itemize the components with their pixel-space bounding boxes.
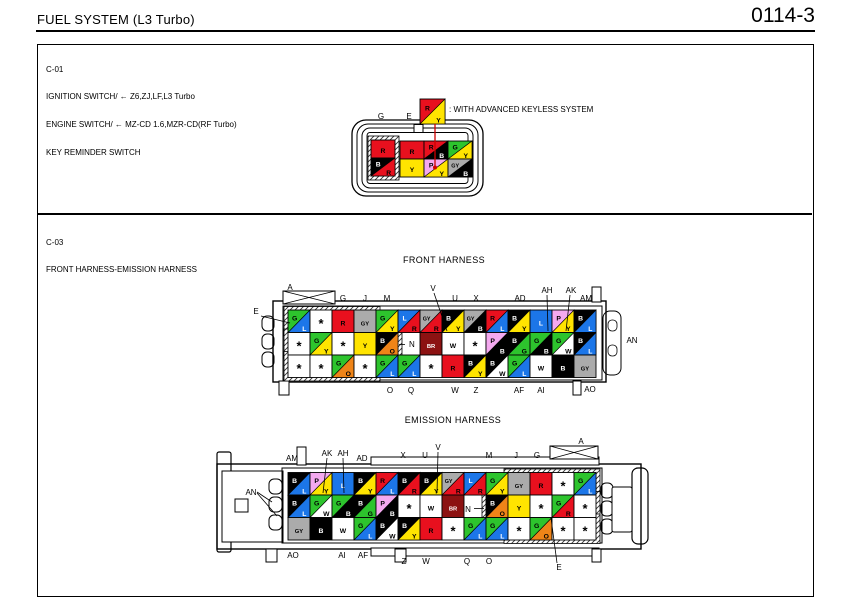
side-bump (608, 345, 617, 356)
wire-letter: R (386, 170, 391, 177)
pin-cell-star: * (310, 310, 332, 333)
wire-letter: G (314, 500, 319, 507)
side-bump (269, 479, 282, 494)
pin-label-G: G (340, 294, 346, 303)
pin-label-AD: AD (514, 294, 525, 303)
wire-letter: G (314, 338, 319, 345)
pin-cell-star: * (464, 333, 486, 356)
wire-letter: R (381, 148, 386, 155)
pin-label-X: X (400, 451, 406, 460)
wire-letter: L (469, 478, 473, 485)
wire-letter: Y (517, 506, 522, 513)
wire-letter: R (412, 326, 417, 333)
wire-letter: G (336, 500, 341, 507)
pin-label-AK: AK (566, 286, 577, 295)
wire-letter: W (389, 534, 396, 541)
wire-letter: O (544, 534, 549, 541)
pin-cell-G-L: GL (464, 518, 486, 541)
wire-letter: GY (581, 367, 590, 373)
pin-cell-B-L: BL (288, 495, 310, 518)
foot (279, 381, 289, 395)
pin-cell-G-L: GL (398, 355, 420, 378)
pin-label-A: A (578, 437, 584, 446)
top-notch (414, 125, 423, 133)
pin-label-A: A (287, 283, 293, 292)
wire-letter: R (478, 489, 483, 496)
pin-label-AH: AH (541, 286, 552, 295)
wire-letter: L (522, 371, 526, 378)
side-bump (601, 519, 613, 534)
pin-cell-R-L: RL (376, 473, 398, 496)
pin-cell-B-Y: BY (354, 473, 376, 496)
wire-letter: G (402, 360, 407, 367)
pin-cell-G-L: GL (486, 518, 508, 541)
pin-cell-B-Y: BY (464, 355, 486, 378)
pin-cell-star: * (508, 518, 530, 541)
pin-cell-P-Y: PY (552, 310, 574, 333)
pin-cell-G-L: GL (508, 355, 530, 378)
wire-letter: R (490, 315, 495, 322)
pin-label-U: U (452, 294, 458, 303)
pin-label-Q: Q (464, 557, 470, 566)
pin-cell-B-R: BR (371, 158, 395, 177)
wire-letter: B (490, 360, 495, 367)
pin-cell-G-Y: GY (376, 310, 398, 333)
pin-label-M: M (384, 294, 391, 303)
pin-label-AD: AD (356, 454, 367, 463)
pin-cell-B-G: BG (508, 333, 530, 356)
wire-letter: B (446, 315, 451, 322)
pin-cell-G-L: GL (288, 310, 310, 333)
pin-cell-L-R: LR (464, 473, 486, 496)
pin-label-N: N (409, 340, 415, 349)
pin-cell-star: * (398, 495, 420, 518)
pin-cell-star: * (288, 333, 310, 356)
wire-letter: L (500, 534, 504, 541)
pin-label-AO: AO (287, 551, 299, 560)
wire-letter: Y (439, 171, 444, 178)
wire-letter: B (380, 338, 385, 345)
pin-cell-L: L (332, 473, 354, 496)
pin-label-O: O (387, 386, 393, 395)
pin-label-AM: AM (286, 454, 298, 463)
pin-label-Q: Q (408, 386, 414, 395)
pin-cell-B-W: BW (486, 355, 508, 378)
foot (573, 381, 581, 395)
wire-letter: GY (451, 163, 459, 169)
wire-letter: B (319, 528, 324, 535)
pin-label-Z: Z (402, 557, 407, 566)
side-bump (262, 316, 274, 331)
pin-cell-W: W (442, 333, 464, 356)
pin-cell-BR: BR (442, 495, 464, 518)
wire-letter: G (556, 338, 561, 345)
wire-letter: L (412, 371, 416, 378)
wire-letter: G (534, 523, 539, 530)
pin-label-G: G (534, 451, 540, 460)
pin-cell-B-L: BL (574, 333, 596, 356)
wire-letter: GY (515, 484, 524, 490)
wire-letter: L (403, 315, 407, 322)
side-bump (601, 501, 613, 516)
pin-cell-G-B: GB (530, 333, 552, 356)
right-end-cap (632, 468, 648, 544)
wire-letter: BR (427, 344, 436, 350)
pin-label-E: E (406, 112, 411, 121)
pin-cell-star: * (552, 473, 574, 496)
pin-cell-GY-R: GYR (420, 310, 442, 333)
pin-cell-star: * (530, 495, 552, 518)
wire-letter: G (578, 478, 583, 485)
wire-letter: B (512, 315, 517, 322)
wire-letter: B (358, 478, 363, 485)
pin-label-U: U (422, 451, 428, 460)
right-cap-detail (612, 487, 632, 532)
wire-letter: R (341, 321, 346, 328)
foot (266, 549, 277, 562)
top-tab (592, 287, 601, 302)
wire-letter: L (368, 534, 372, 541)
side-bump (262, 334, 274, 349)
pin-cell-star: * (354, 355, 376, 378)
pin-label-AI: AI (338, 551, 346, 560)
pin-cell-B-Y: BY (398, 518, 420, 541)
pin-label-N: N (465, 505, 471, 514)
wire-letter: P (490, 338, 495, 345)
pin-label-V: V (430, 284, 436, 293)
pin-label-AI: AI (537, 386, 545, 395)
pin-cell-GY: GY (508, 473, 530, 496)
pin-cell-G-O: GO (530, 518, 552, 541)
wire-letter: L (390, 371, 394, 378)
wire-letter: B (578, 338, 583, 345)
wire-letter: B (490, 500, 495, 507)
pin-cell-B-L: BL (288, 473, 310, 496)
wire-letter: W (538, 366, 545, 373)
wire-letter: W (499, 371, 506, 378)
pin-cell-B-Y: BY (420, 473, 442, 496)
wire-letter: B (424, 478, 429, 485)
pin-label-AF: AF (514, 386, 524, 395)
pin-label-E: E (556, 563, 561, 572)
pin-label-X: X (473, 294, 479, 303)
pin-cell-G-L: GL (376, 355, 398, 378)
wire-letter: GY (467, 316, 475, 322)
pin-cell-B-Y: BY (442, 310, 464, 333)
c01-connector-diagram: RBRRRBGYYPYGYBRYGE (352, 99, 483, 196)
pin-label-J: J (514, 451, 518, 460)
connector-diagrams: RBRRRBGYYPYGYBRYGE GL*RGYGYLRGYRBYGYBRLB… (0, 0, 849, 607)
pin-cell-P-B: PB (376, 495, 398, 518)
pin-cell-R: R (400, 141, 424, 159)
wire-letter: B (578, 315, 583, 322)
wire-letter: G (490, 478, 495, 485)
wire-letter: G (534, 338, 539, 345)
pin-cell-W: W (530, 355, 552, 378)
pin-cell-B-W: BW (376, 518, 398, 541)
pin-label-AN: AN (626, 336, 637, 345)
wire-letter: B (468, 360, 473, 367)
wire-letter: R (425, 106, 430, 113)
pin-label-AN: AN (245, 488, 256, 497)
left-section-hole (235, 499, 248, 512)
wire-letter: G (336, 360, 341, 367)
pin-cell-G-Y: GY (310, 333, 332, 356)
wire-letter: G (490, 523, 495, 530)
wire-letter: G (556, 500, 561, 507)
manual-page: FUEL SYSTEM (L3 Turbo) 0114-3 C-01 IGNIT… (0, 0, 849, 607)
wire-letter: R (451, 366, 456, 373)
wire-letter: Y (412, 534, 417, 541)
wire-letter: W (340, 528, 347, 535)
pin-cell-P-Y: PY (310, 473, 332, 496)
pin-cell-B-R: BR (398, 473, 420, 496)
side-bump (269, 497, 282, 512)
wire-letter: R (429, 528, 434, 535)
wire-letter: W (450, 343, 457, 350)
pin-cell-G-O: GO (332, 355, 354, 378)
wire-letter: B (292, 500, 297, 507)
pin-label-AH: AH (337, 449, 348, 458)
side-bump (262, 352, 274, 367)
pin-cell-B-G: BG (354, 495, 376, 518)
wire-letter: G (292, 315, 297, 322)
wire-letter: B (402, 478, 407, 485)
pin-cell-GY-R: GYR (442, 473, 464, 496)
pin-cell-B: B (552, 355, 574, 378)
pin-label-O: O (486, 557, 492, 566)
wire-letter: G (468, 523, 473, 530)
wire-letter: GY (295, 529, 304, 535)
wire-letter: O (346, 371, 351, 378)
pin-cell-R: R (420, 518, 442, 541)
pin-label-G: G (378, 112, 384, 121)
pin-cell-star: * (420, 355, 442, 378)
wire-letter: B (561, 366, 566, 373)
pin-cell-G-Y: GY (486, 473, 508, 496)
legend-pointer-dot (433, 166, 437, 170)
wire-letter: L (539, 321, 543, 328)
pin-cell-star: * (574, 518, 596, 541)
wire-letter: L (341, 483, 345, 490)
pin-cell-star: * (552, 518, 574, 541)
pin-cell-B-O: BO (486, 495, 508, 518)
pin-cell-star: * (288, 355, 310, 378)
wire-letter: G (358, 523, 363, 530)
pin-cell-Y: Y (400, 159, 424, 177)
pin-label-W: W (451, 386, 459, 395)
wire-letter: G (453, 144, 458, 151)
pin-cell-L-R: LR (398, 310, 420, 333)
pin-cell-G-L: GL (574, 473, 596, 496)
wire-letter: R (429, 144, 434, 151)
side-bump (269, 515, 282, 530)
pin-cell-Y: Y (354, 333, 376, 356)
pin-cell-R: R (371, 140, 395, 158)
pin-cell-GY: GY (354, 310, 376, 333)
wire-letter: BR (449, 507, 458, 513)
pin-label-V: V (435, 443, 441, 452)
pin-cell-B-Y: BY (508, 310, 530, 333)
pin-label-AF: AF (358, 551, 368, 560)
wire-letter: P (556, 315, 561, 322)
wire-letter: B (292, 478, 297, 485)
pin-label-Z: Z (474, 386, 479, 395)
wire-letter: G (512, 360, 517, 367)
wire-letter: GY (361, 322, 370, 328)
pin-label-J: J (363, 294, 367, 303)
pin-cell-P-B: PB (486, 333, 508, 356)
wire-letter: B (402, 523, 407, 530)
wire-letter: R (410, 149, 415, 156)
wire-letter: L (478, 534, 482, 541)
wire-letter: R (380, 478, 385, 485)
pin-cell-GY: GY (288, 518, 310, 541)
pin-cell-R: R (442, 355, 464, 378)
pin-label-W: W (422, 557, 430, 566)
pin-cell-star: * (332, 333, 354, 356)
pin-label-AM: AM (580, 294, 592, 303)
pin-cell-R-Y: RY (420, 99, 445, 125)
pin-label-AO: AO (584, 385, 596, 394)
wire-letter: G (380, 360, 385, 367)
pin-cell-star: * (574, 495, 596, 518)
wire-letter: Y (410, 167, 415, 174)
pin-cell-W: W (332, 518, 354, 541)
pin-cell-BR: BR (420, 333, 442, 356)
pin-cell-star: * (310, 355, 332, 378)
pin-cell-R-L: RL (486, 310, 508, 333)
wire-letter: Y (363, 343, 368, 350)
pin-cell-G-W: GW (552, 333, 574, 356)
pin-cell-Y: Y (508, 495, 530, 518)
pin-label-AK: AK (322, 449, 333, 458)
wire-letter: P (314, 478, 319, 485)
pin-cell-star: * (442, 518, 464, 541)
wire-letter: W (428, 506, 435, 513)
pin-label-M: M (486, 451, 493, 460)
pin-cell-G-Y: GY (448, 141, 472, 160)
side-bump (601, 483, 613, 498)
front-harness-diagram: GL*RGYGYLRGYRBYGYBRLBYLPYBL*GY*YBOBRW*PB… (253, 283, 637, 395)
pin-label-E: E (253, 307, 258, 316)
top-tab (297, 447, 306, 465)
wire-letter: R (539, 483, 544, 490)
wire-letter: B (376, 161, 381, 168)
pin-cell-G-W: GW (310, 495, 332, 518)
pin-cell-W: W (420, 495, 442, 518)
pin-cell-B-O: BO (376, 333, 398, 356)
pin-cell-GY: GY (574, 355, 596, 378)
wire-letter: B (358, 500, 363, 507)
emission-harness-diagram: BLPYLBYRLBRBYGYRLRGYGYR*GLBLGWGBBGPB*WBR… (217, 437, 648, 572)
wire-letter: G (380, 315, 385, 322)
pin-cell-GY-B: GYB (448, 159, 472, 178)
wire-letter: B (463, 171, 468, 178)
pin-cell-L: L (530, 310, 552, 333)
foot (592, 549, 601, 562)
pin-cell-B-L: BL (574, 310, 596, 333)
pin-cell-G-L: GL (354, 518, 376, 541)
wire-letter: B (380, 523, 385, 530)
wire-letter: Y (478, 371, 483, 378)
wire-letter: P (380, 500, 385, 507)
wire-letter: Y (436, 118, 441, 125)
pin-cell-B: B (310, 518, 332, 541)
wire-letter: B (512, 338, 517, 345)
pin-cell-R-B: RB (424, 141, 448, 160)
wire-letter: GY (423, 316, 431, 322)
pin-cell-G-R: GR (552, 495, 574, 518)
wire-letter: GY (445, 479, 453, 485)
pin-cell-R: R (332, 310, 354, 333)
side-bump (608, 320, 617, 331)
pin-cell-G-B: GB (332, 495, 354, 518)
pin-cell-GY-B: GYB (464, 310, 486, 333)
pin-cell-R: R (530, 473, 552, 496)
